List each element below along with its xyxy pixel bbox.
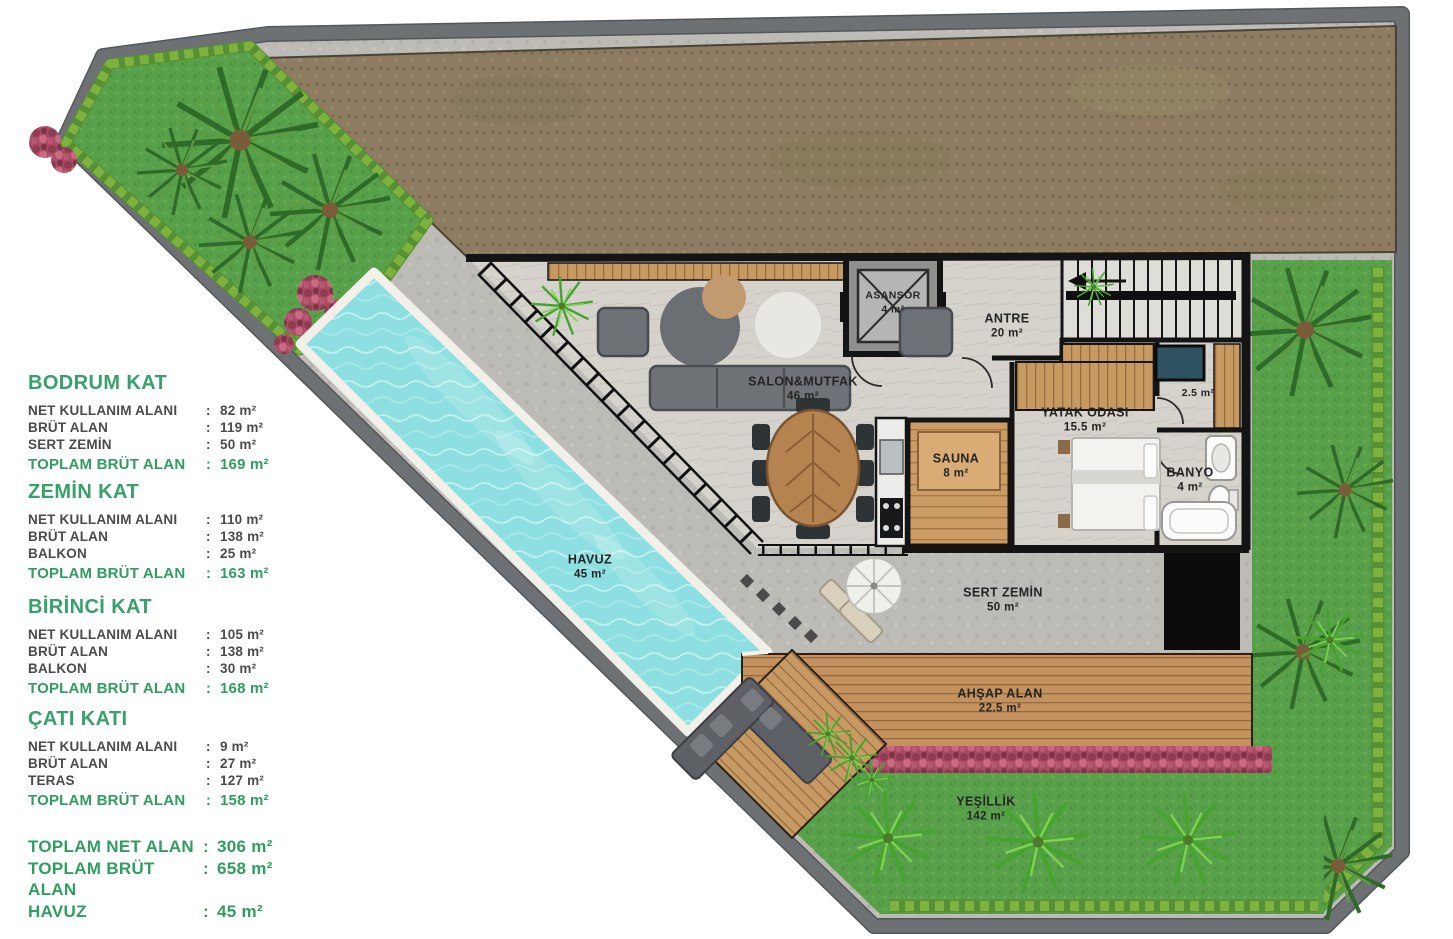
floor-section-cati: ÇATI KATI NET KULLANIM ALANI : 9 m² BRÜT… — [28, 708, 358, 811]
grand-total-row: TOPLAM BRÜT ALAN : 658 m² — [28, 858, 358, 901]
floor-section-birinci: BİRİNCİ KAT NET KULLANIM ALANI : 105 m² … — [28, 596, 358, 699]
area-total-value: 168 m² — [220, 679, 269, 699]
colon: : — [203, 901, 217, 923]
grand-total-value: 658 m² — [217, 858, 273, 901]
area-row-value: 110 m² — [220, 511, 263, 528]
area-row: BRÜT ALAN : 138 m² — [28, 528, 358, 545]
area-row: NET KULLANIM ALANI : 9 m² — [28, 738, 358, 755]
area-row-value: 27 m² — [220, 755, 256, 772]
area-total-row: TOPLAM BRÜT ALAN : 158 m² — [28, 791, 358, 811]
grand-total-section: TOPLAM NET ALAN : 306 m² TOPLAM BRÜT ALA… — [28, 836, 358, 922]
area-row: NET KULLANIM ALANI : 110 m² — [28, 511, 358, 528]
area-row-value: 9 m² — [220, 738, 249, 755]
colon: : — [206, 436, 220, 453]
area-total-row: TOPLAM BRÜT ALAN : 163 m² — [28, 564, 358, 584]
area-row-label: NET KULLANIM ALANI — [28, 511, 206, 528]
floor-title: ZEMİN KAT — [28, 481, 358, 504]
area-row-value: 82 m² — [220, 402, 256, 419]
area-row-label: BRÜT ALAN — [28, 419, 206, 436]
area-row-label: NET KULLANIM ALANI — [28, 626, 206, 643]
area-total-value: 158 m² — [220, 791, 269, 811]
area-row-value: 138 m² — [220, 528, 264, 545]
area-row: TERAS : 127 m² — [28, 772, 358, 789]
floor-title: ÇATI KATI — [28, 708, 358, 731]
grand-total-label: TOPLAM BRÜT ALAN — [28, 858, 203, 901]
area-row-label: NET KULLANIM ALANI — [28, 402, 206, 419]
area-row-label: NET KULLANIM ALANI — [28, 738, 206, 755]
colon: : — [206, 511, 220, 528]
area-total-row: TOPLAM BRÜT ALAN : 169 m² — [28, 455, 358, 475]
area-total-value: 169 m² — [220, 455, 269, 475]
area-row-label: BALKON — [28, 545, 206, 562]
area-row-value: 127 m² — [220, 772, 264, 789]
area-row: BRÜT ALAN : 119 m² — [28, 419, 358, 436]
colon: : — [206, 791, 220, 811]
area-total-label: TOPLAM BRÜT ALAN — [28, 791, 206, 811]
area-row-value: 25 m² — [220, 545, 256, 562]
grand-total-value: 306 m² — [217, 836, 273, 858]
grand-total-value: 45 m² — [217, 901, 263, 923]
colon: : — [206, 402, 220, 419]
grand-total-label: TOPLAM NET ALAN — [28, 836, 203, 858]
colon: : — [206, 455, 220, 475]
area-summary-panel: BODRUM KAT NET KULLANIM ALANI : 82 m² BR… — [0, 0, 1453, 939]
area-row: NET KULLANIM ALANI : 82 m² — [28, 402, 358, 419]
grand-total-label: HAVUZ — [28, 901, 203, 923]
area-row-value: 119 m² — [220, 419, 263, 436]
colon: : — [206, 626, 220, 643]
area-total-value: 163 m² — [220, 564, 269, 584]
area-row-label: TERAS — [28, 772, 206, 789]
area-row-label: BALKON — [28, 660, 206, 677]
colon: : — [206, 772, 220, 789]
colon: : — [206, 679, 220, 699]
area-total-label: TOPLAM BRÜT ALAN — [28, 564, 206, 584]
colon: : — [206, 564, 220, 584]
area-row-label: SERT ZEMİN — [28, 436, 206, 453]
area-row-value: 138 m² — [220, 643, 264, 660]
area-total-row: TOPLAM BRÜT ALAN : 168 m² — [28, 679, 358, 699]
area-row: BALKON : 25 m² — [28, 545, 358, 562]
area-row-label: BRÜT ALAN — [28, 528, 206, 545]
colon: : — [206, 419, 220, 436]
area-row-label: BRÜT ALAN — [28, 755, 206, 772]
grand-total-row: TOPLAM NET ALAN : 306 m² — [28, 836, 358, 858]
area-row: BRÜT ALAN : 138 m² — [28, 643, 358, 660]
floorplan-page: ASANSÖR 4 m² ANTRE 20 m² SALON&MUTFAK 46… — [0, 0, 1453, 939]
colon: : — [206, 738, 220, 755]
area-row: BRÜT ALAN : 27 m² — [28, 755, 358, 772]
area-total-label: TOPLAM BRÜT ALAN — [28, 679, 206, 699]
area-row-value: 30 m² — [220, 660, 256, 677]
area-row: BALKON : 30 m² — [28, 660, 358, 677]
area-row-label: BRÜT ALAN — [28, 643, 206, 660]
area-row: NET KULLANIM ALANI : 105 m² — [28, 626, 358, 643]
floor-title: BİRİNCİ KAT — [28, 596, 358, 619]
floor-title: BODRUM KAT — [28, 372, 358, 395]
area-total-label: TOPLAM BRÜT ALAN — [28, 455, 206, 475]
colon: : — [206, 755, 220, 772]
colon: : — [206, 643, 220, 660]
area-row-value: 105 m² — [220, 626, 264, 643]
colon: : — [203, 858, 217, 901]
area-row: SERT ZEMİN : 50 m² — [28, 436, 358, 453]
colon: : — [206, 660, 220, 677]
area-row-value: 50 m² — [220, 436, 256, 453]
colon: : — [206, 528, 220, 545]
grand-total-row: HAVUZ : 45 m² — [28, 901, 358, 923]
colon: : — [206, 545, 220, 562]
floor-section-bodrum: BODRUM KAT NET KULLANIM ALANI : 82 m² BR… — [28, 372, 358, 475]
floor-section-zemin: ZEMİN KAT NET KULLANIM ALANI : 110 m² BR… — [28, 481, 358, 584]
colon: : — [203, 836, 217, 858]
